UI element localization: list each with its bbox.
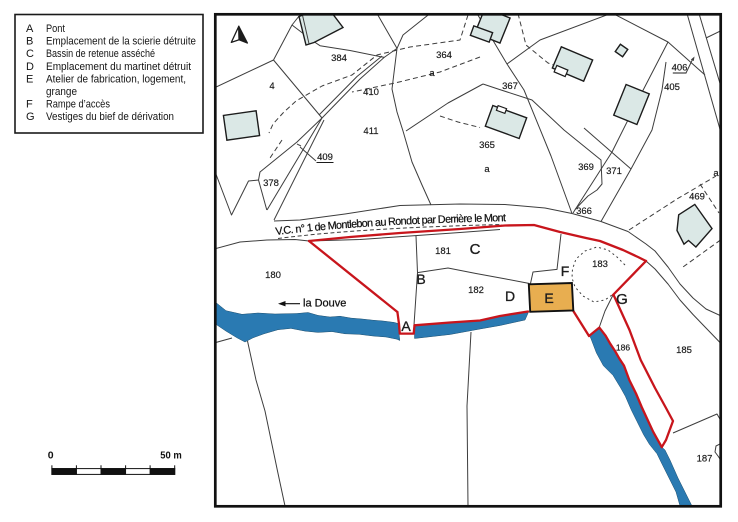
svg-text:183: 183 (592, 259, 608, 270)
svg-text:Emplacement du martinet détrui: Emplacement du martinet détruit (46, 61, 191, 73)
svg-text:366: 366 (576, 206, 592, 217)
svg-text:411: 411 (363, 126, 378, 137)
svg-text:la Douve: la Douve (303, 298, 346, 310)
svg-text:384: 384 (331, 53, 347, 64)
svg-text:182: 182 (468, 285, 484, 296)
svg-text:Pont: Pont (46, 23, 65, 35)
svg-text:187: 187 (697, 454, 713, 465)
svg-text:406: 406 (672, 63, 688, 74)
svg-text:410: 410 (363, 87, 379, 98)
svg-text:D: D (26, 61, 34, 73)
svg-text:G: G (616, 291, 628, 308)
svg-text:50 m: 50 m (160, 450, 182, 462)
svg-text:a: a (429, 68, 435, 79)
svg-text:Emplacement de la scierie détr: Emplacement de la scierie détruite (46, 36, 196, 48)
svg-text:180: 180 (265, 270, 281, 281)
svg-text:469: 469 (689, 192, 705, 203)
svg-text:181: 181 (435, 246, 451, 257)
svg-text:E: E (544, 290, 553, 306)
svg-text:a: a (713, 168, 719, 179)
svg-text:186: 186 (616, 343, 630, 353)
svg-text:Rampe d’accès: Rampe d’accès (46, 99, 110, 111)
svg-text:A: A (401, 318, 411, 334)
svg-text:369: 369 (578, 162, 594, 173)
svg-text:Bassin de retenue asséché: Bassin de retenue asséché (46, 48, 155, 60)
svg-text:4: 4 (269, 81, 274, 92)
svg-text:B: B (416, 271, 425, 287)
svg-text:365: 365 (479, 140, 495, 151)
svg-text:409: 409 (317, 152, 333, 163)
svg-text:367: 367 (502, 81, 518, 92)
svg-text:A: A (26, 23, 34, 35)
svg-text:405: 405 (664, 82, 680, 93)
svg-text:G: G (26, 111, 35, 123)
svg-text:185: 185 (676, 345, 692, 356)
svg-text:F: F (561, 263, 570, 279)
svg-text:Atelier de fabrication, logeme: Atelier de fabrication, logement, (46, 73, 186, 85)
svg-text:C: C (470, 241, 481, 258)
svg-text:378: 378 (263, 178, 279, 189)
svg-text:364: 364 (436, 50, 452, 61)
svg-text:Vestiges du bief de dérivation: Vestiges du bief de dérivation (46, 111, 174, 123)
svg-text:E: E (26, 73, 33, 85)
svg-text:grange: grange (46, 86, 77, 98)
svg-text:D: D (505, 288, 515, 304)
svg-text:C: C (26, 48, 34, 60)
svg-text:0: 0 (48, 450, 54, 462)
svg-text:371: 371 (606, 166, 622, 177)
svg-text:F: F (26, 99, 33, 111)
svg-text:B: B (26, 36, 33, 48)
svg-text:a: a (484, 164, 490, 175)
